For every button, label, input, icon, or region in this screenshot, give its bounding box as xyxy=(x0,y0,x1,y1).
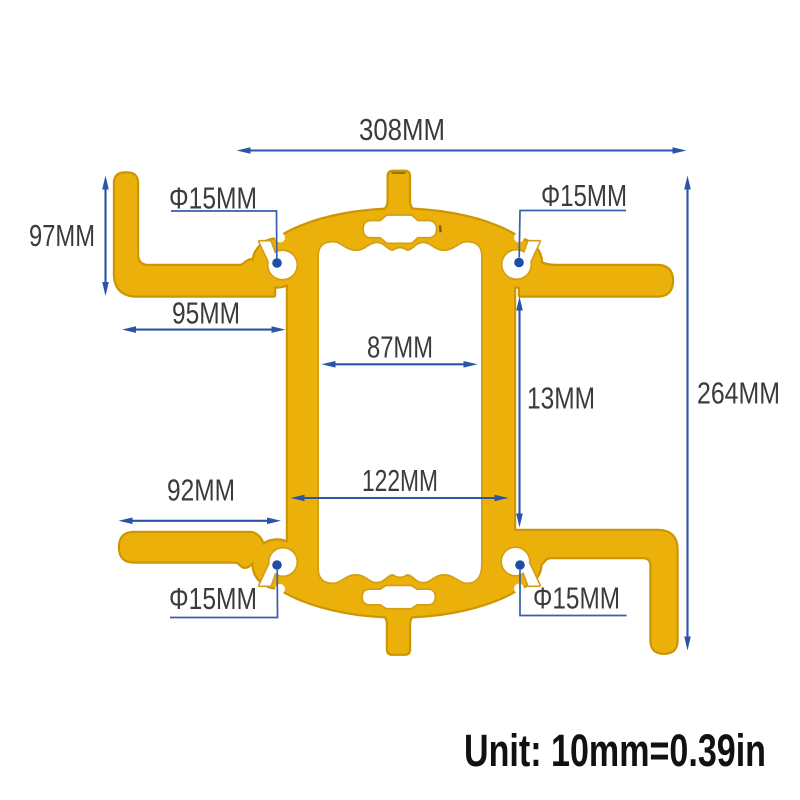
svg-text:87MM: 87MM xyxy=(367,330,433,365)
svg-text:Φ15MM: Φ15MM xyxy=(533,581,620,616)
svg-text:92MM: 92MM xyxy=(167,473,235,508)
svg-text:Φ15MM: Φ15MM xyxy=(169,181,257,216)
svg-text:Φ15MM: Φ15MM xyxy=(541,178,627,213)
svg-text:122MM: 122MM xyxy=(362,463,438,498)
svg-text:Φ15MM: Φ15MM xyxy=(169,581,257,616)
svg-text:97MM: 97MM xyxy=(29,218,95,253)
svg-text:264MM: 264MM xyxy=(697,376,780,411)
svg-text:95MM: 95MM xyxy=(172,296,240,331)
svg-text:308MM: 308MM xyxy=(359,112,445,147)
svg-text:Unit: 10mm=0.39in: Unit: 10mm=0.39in xyxy=(464,725,766,776)
svg-text:13MM: 13MM xyxy=(527,381,595,416)
